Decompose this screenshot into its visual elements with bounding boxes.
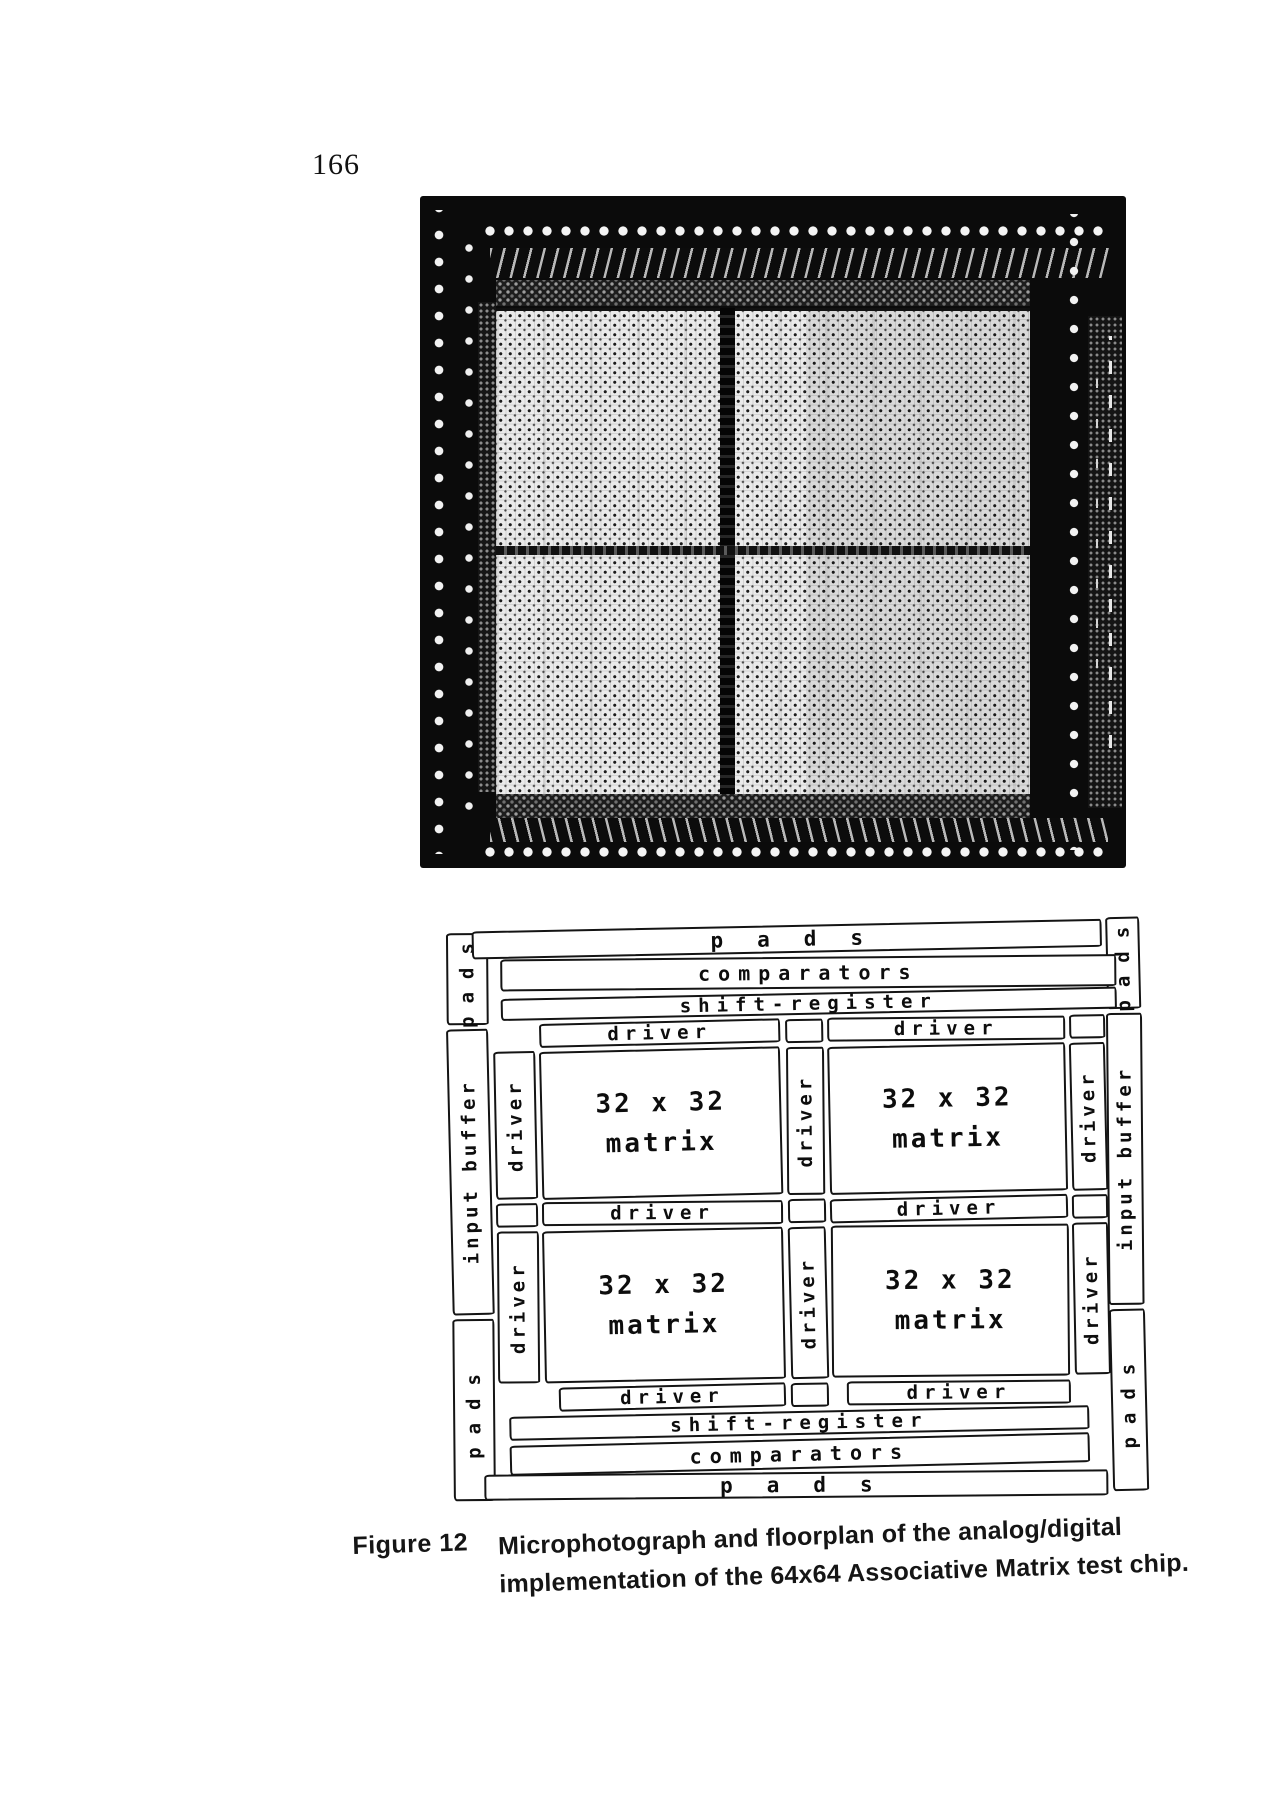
matrix-word-label: matrix [882,1117,1013,1160]
input-buffer-right: input buffer [1106,1013,1145,1305]
driver-column-left-upper: driver [493,1051,538,1200]
driver-label: driver [620,1385,725,1409]
matrix-size-label: 32 x 32 [598,1264,729,1307]
photo-right-dash-line [1109,336,1112,748]
driver-column-center-lower: driver [788,1226,830,1379]
matrix-lower-left: 32 x 32 matrix [542,1227,786,1384]
page-number: 166 [312,148,360,182]
matrix-size-label: 32 x 32 [595,1082,726,1125]
photo-right-dash-line [1096,376,1098,668]
filler-box [788,1199,826,1224]
matrix-word-label: matrix [599,1304,730,1347]
pads-bar-top: pads [472,919,1102,960]
driver-bar-top-right: driver [827,1016,1065,1042]
pads-label: pads [686,1472,907,1498]
photo-top-driver-comb [490,248,1110,278]
matrix-lower-right: 32 x 32 matrix [831,1224,1070,1378]
matrix-word-label: matrix [885,1300,1016,1341]
driver-label: driver [504,1079,528,1172]
driver-column-right-lower: driver [1072,1222,1111,1375]
driver-column-right-upper: driver [1069,1042,1108,1191]
input-buffer-left: input buffer [446,1029,495,1316]
matrix-upper-left: 32 x 32 matrix [539,1046,783,1200]
photo-horizontal-divider [496,546,1030,555]
driver-label: driver [607,1021,712,1045]
photo-right-texture-strip [1088,316,1122,808]
driver-bar-mid-left: driver [542,1200,783,1226]
comparators-bar-top: comparators [500,954,1116,991]
filler-box [785,1019,823,1044]
photo-top-pad-row [478,218,1110,244]
photo-right-pad-column [1064,214,1084,850]
driver-label: driver [1076,1070,1100,1163]
figure-label: Figure 12 [352,1528,469,1561]
matrix-word-label: matrix [596,1122,727,1165]
shift-register-label: shift-register [680,990,939,1017]
pads-label: pads [676,925,897,953]
filler-box [791,1383,829,1408]
filler-box [1072,1194,1108,1219]
filler-box [1069,1014,1105,1039]
photo-left-texture-strip [478,302,496,792]
chip-microphotograph [420,196,1126,868]
driver-label: driver [906,1381,1011,1404]
driver-label: driver [507,1261,530,1354]
photo-bottom-pad-row [478,841,1110,863]
driver-label: driver [894,1017,999,1040]
matrix-upper-right: 32 x 32 matrix [827,1042,1068,1195]
driver-bar-bottom-left: driver [559,1382,787,1411]
driver-label: driver [896,1196,1001,1220]
filler-box [496,1203,538,1228]
input-buffer-label: input buffer [1113,1066,1137,1251]
shift-register-label: shift-register [670,1409,929,1436]
photo-top-texture-band [496,280,1030,306]
comparators-label: comparators [698,960,919,986]
driver-bar-top-left: driver [539,1018,780,1048]
driver-bar-mid-right: driver [830,1194,1068,1224]
comparators-label: comparators [689,1439,910,1468]
driver-label: driver [1080,1252,1104,1345]
photo-left-pad-column-outer [427,210,451,854]
driver-column-left-lower: driver [497,1231,540,1383]
matrix-size-label: 32 x 32 [885,1260,1016,1301]
driver-label: driver [610,1202,715,1225]
photo-bottom-texture-band [496,794,1030,818]
driver-label: driver [796,1256,820,1349]
scanned-page: 166 pads input buffer pads [0,0,1264,1813]
figure-caption: Figure 12 Microphotograph and floorplan … [352,1504,1234,1608]
chip-floorplan: pads input buffer pads pads input buffer… [441,913,1150,1506]
photo-bottom-driver-comb [490,818,1108,842]
figure-caption-text: Microphotograph and floorplan of the ana… [498,1506,1190,1604]
pads-label: pads [463,1361,486,1459]
driver-bar-bottom-right: driver [847,1379,1071,1405]
driver-column-center-upper: driver [786,1047,825,1195]
input-buffer-label: input buffer [457,1079,483,1265]
matrix-size-label: 32 x 32 [882,1077,1013,1120]
driver-label: driver [794,1074,817,1167]
photo-left-pad-column-inner [460,226,478,828]
pads-strip-right-bottom: pads [1109,1308,1149,1491]
photo-matrix-core [496,308,1030,795]
pads-label: pads [1117,1351,1141,1449]
pads-bar-bottom: pads [484,1469,1108,1500]
